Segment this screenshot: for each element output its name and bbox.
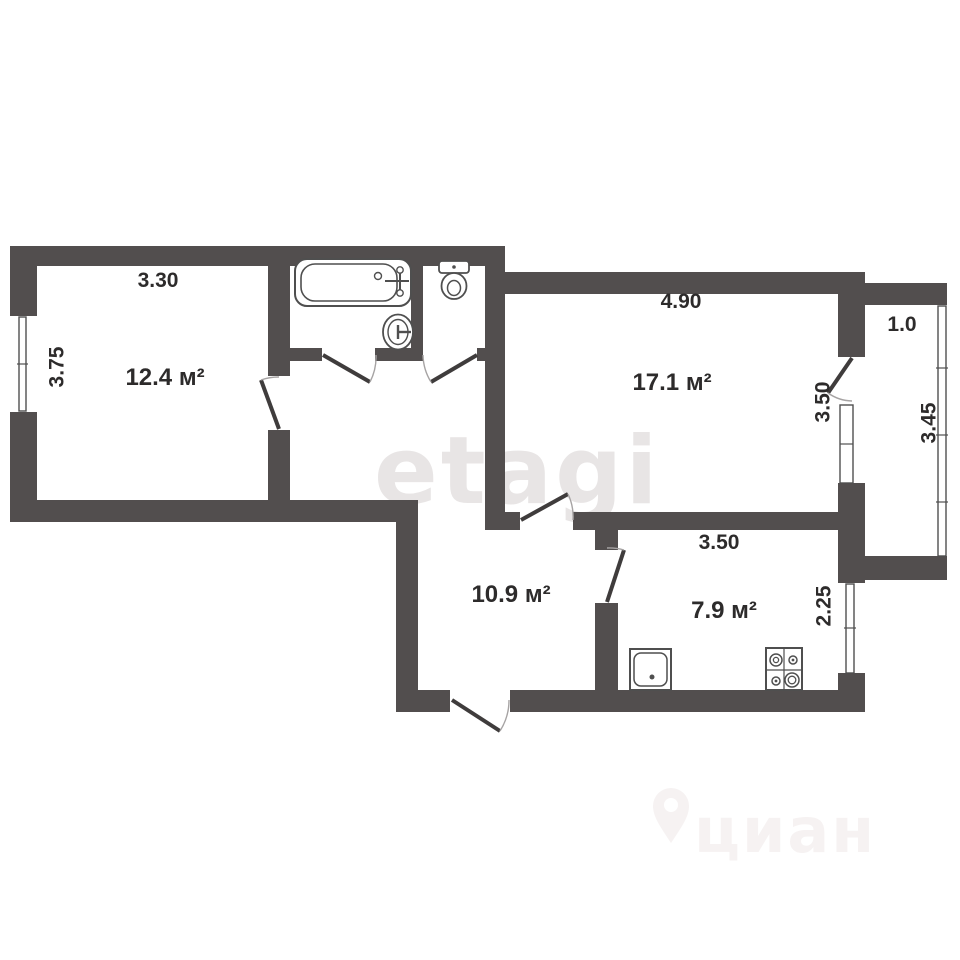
wall: [487, 512, 520, 530]
label-room-12-4-area: 12.4 м²: [125, 364, 204, 391]
wall: [485, 246, 505, 530]
wall: [510, 690, 840, 712]
toilet: [439, 261, 469, 299]
window-room-17-1-balcony: [840, 405, 853, 483]
label-room-12-4-depth: 3.75: [46, 346, 69, 387]
window-room-12-4: [17, 317, 28, 411]
entrance-door: [452, 700, 509, 731]
wall: [411, 246, 423, 358]
wall: [838, 673, 865, 712]
wall: [268, 246, 290, 376]
window-kitchen: [844, 584, 856, 673]
wall: [268, 430, 290, 522]
door-bathroom: [323, 355, 376, 382]
wall: [396, 690, 450, 712]
kitchen-sink: [630, 649, 671, 690]
floor-plan: etagi циан: [0, 0, 960, 960]
bathtub: [295, 259, 411, 306]
label-balcony-width: 1.0: [887, 313, 916, 336]
stove: [766, 648, 802, 690]
label-room-17-1-depth: 3.50: [812, 382, 835, 423]
wall: [290, 348, 322, 361]
map-pin-icon: [653, 788, 689, 843]
floor-plan-page: etagi циан: [0, 0, 960, 960]
door-kitchen: [607, 548, 624, 602]
wall: [10, 246, 37, 316]
wall: [865, 556, 947, 580]
wall: [838, 272, 865, 357]
label-balcony-depth: 3.45: [918, 402, 941, 443]
label-room-12-4-width: 3.30: [138, 269, 179, 292]
wall: [838, 483, 865, 583]
svg-text:циан: циан: [694, 794, 876, 867]
wall: [396, 500, 418, 712]
bathroom-sink: [383, 315, 413, 350]
door-room-12-4: [261, 377, 279, 429]
wall: [595, 512, 618, 550]
door-wc: [423, 355, 477, 382]
label-kitchen-depth: 2.25: [813, 585, 836, 626]
watermark-cian: циан: [653, 788, 876, 867]
wall: [865, 283, 947, 305]
label-kitchen-area: 7.9 м²: [691, 597, 757, 624]
label-kitchen-width: 3.50: [699, 531, 740, 554]
wall: [595, 603, 618, 712]
wall: [10, 500, 418, 522]
label-hallway-area: 10.9 м²: [471, 581, 550, 608]
label-room-17-1-area: 17.1 м²: [632, 369, 711, 396]
label-room-17-1-width: 4.90: [661, 290, 702, 313]
